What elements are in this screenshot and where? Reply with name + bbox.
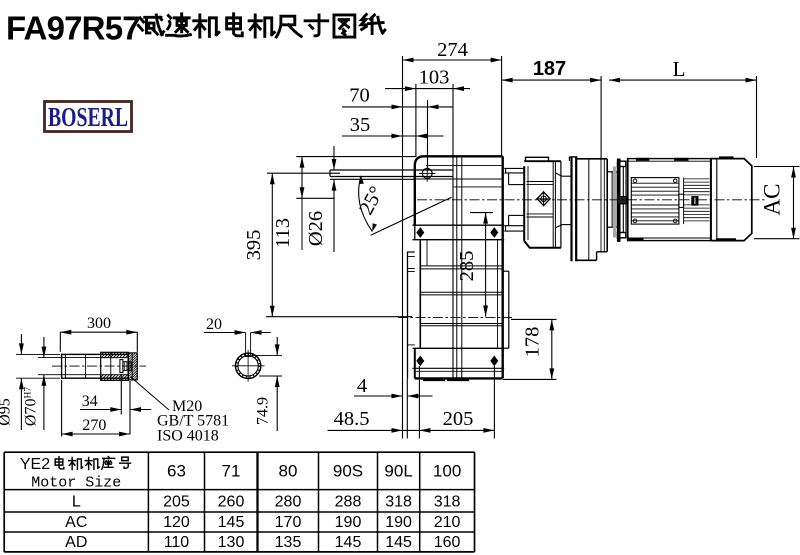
svg-text:100: 100 xyxy=(433,462,461,481)
svg-text:L: L xyxy=(72,494,81,511)
svg-text:130: 130 xyxy=(218,534,245,551)
svg-text:FA97R57: FA97R57 xyxy=(6,10,140,47)
svg-text:205: 205 xyxy=(163,494,190,511)
svg-text:90S: 90S xyxy=(333,462,363,481)
svg-text:280: 280 xyxy=(275,494,302,511)
svg-text:ISO 4018: ISO 4018 xyxy=(157,428,219,445)
svg-text:395: 395 xyxy=(243,230,265,261)
svg-text:260: 260 xyxy=(218,494,245,511)
svg-text:Ø95: Ø95 xyxy=(0,398,14,426)
svg-text:120: 120 xyxy=(163,514,190,531)
svg-text:187: 187 xyxy=(533,58,566,80)
svg-text:110: 110 xyxy=(164,534,190,551)
svg-text:34: 34 xyxy=(82,393,98,410)
svg-text:178: 178 xyxy=(522,327,544,358)
svg-text:210: 210 xyxy=(434,514,461,531)
svg-text:35: 35 xyxy=(350,114,371,136)
svg-text:71: 71 xyxy=(222,462,241,481)
svg-text:AD: AD xyxy=(65,534,87,551)
svg-text:Ø70H7: Ø70H7 xyxy=(22,387,39,426)
svg-text:25°: 25° xyxy=(355,183,388,219)
svg-text:BOSERL: BOSERL xyxy=(48,102,128,132)
svg-text:80: 80 xyxy=(279,462,298,481)
svg-text:63: 63 xyxy=(167,462,186,481)
svg-text:AC: AC xyxy=(65,514,87,531)
svg-text:285: 285 xyxy=(456,251,478,282)
svg-text:318: 318 xyxy=(385,494,412,511)
svg-text:318: 318 xyxy=(434,494,461,511)
svg-text:48.5: 48.5 xyxy=(334,408,370,430)
svg-text:AC: AC xyxy=(760,184,785,216)
svg-text:190: 190 xyxy=(335,514,362,531)
svg-text:4: 4 xyxy=(357,375,367,397)
svg-text:190: 190 xyxy=(385,514,412,531)
svg-text:20: 20 xyxy=(206,316,222,333)
svg-text:Motor Size: Motor Size xyxy=(31,475,121,492)
svg-text:205: 205 xyxy=(443,408,474,430)
svg-text:300: 300 xyxy=(87,315,111,332)
svg-text:Ø26: Ø26 xyxy=(305,211,327,246)
svg-text:90L: 90L xyxy=(384,462,412,481)
svg-text:160: 160 xyxy=(434,534,461,551)
svg-text:288: 288 xyxy=(335,494,362,511)
svg-text:135: 135 xyxy=(275,534,302,551)
svg-text:103: 103 xyxy=(419,67,450,89)
svg-text:145: 145 xyxy=(385,534,412,551)
svg-text:170: 170 xyxy=(275,514,302,531)
svg-text:145: 145 xyxy=(218,514,245,531)
svg-text:113: 113 xyxy=(272,218,294,248)
svg-text:70: 70 xyxy=(349,85,370,107)
svg-text:74.9: 74.9 xyxy=(254,397,271,425)
svg-text:270: 270 xyxy=(82,417,106,434)
svg-text:YE2: YE2 xyxy=(20,456,50,473)
svg-text:274: 274 xyxy=(437,39,468,61)
svg-text:L: L xyxy=(673,57,686,81)
svg-text:145: 145 xyxy=(335,534,362,551)
